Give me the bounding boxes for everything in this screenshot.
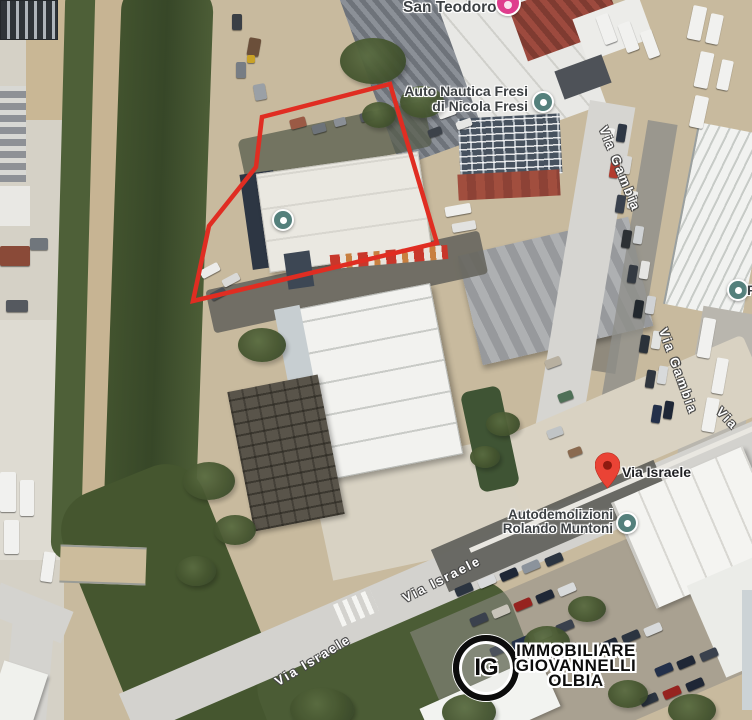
skylight-roof [457, 113, 562, 178]
agency-monogram: IG [474, 654, 497, 682]
tree [568, 596, 606, 622]
poi-label-edge-fragment: R [747, 282, 752, 298]
tree [214, 515, 256, 545]
vehicle [640, 29, 661, 59]
vehicle [236, 62, 246, 78]
tree [340, 38, 406, 84]
vehicle [716, 59, 734, 91]
vehicle [4, 520, 19, 554]
poi-label-line: di Nicola Fresi [398, 99, 528, 114]
tree [176, 556, 216, 586]
poi-label-line: Auto Nautica Fresi [398, 84, 528, 99]
vehicle [444, 203, 471, 217]
vehicle [6, 300, 28, 312]
brick-facade [457, 169, 560, 200]
poi-marker-icon[interactable] [616, 512, 638, 534]
vehicle [247, 37, 262, 57]
poi-label-san-teodoro[interactable]: San Teodoro [403, 0, 497, 17]
poi-marker-icon[interactable] [532, 91, 554, 113]
building-roof [0, 86, 26, 182]
red-map-pin-icon[interactable] [595, 452, 620, 489]
agency-name: IMMOBILIARE GIOVANNELLI OLBIA [510, 643, 642, 688]
vehicle [253, 83, 268, 101]
vehicle [693, 51, 714, 89]
vehicle [20, 480, 34, 516]
satellite-imagery [0, 0, 752, 720]
agency-watermark: IG IMMOBILIARE GIOVANNELLI OLBIA [450, 632, 690, 712]
poi-label-auto-nautica[interactable]: Auto Nautica Fresi di Nicola Fresi [398, 84, 528, 114]
tree [183, 462, 235, 500]
building-edge [742, 590, 752, 710]
vehicle [687, 5, 708, 41]
poi-label-autodemolizioni[interactable]: Autodemolizioni Rolando Muntoni [495, 508, 613, 536]
vehicle [0, 246, 30, 266]
bridge [59, 545, 146, 586]
poi-marker-icon[interactable] [272, 209, 294, 231]
building-annex [284, 250, 315, 289]
poi-label-line: Autodemolizioni [495, 508, 613, 522]
poi-label-line: Rolando Muntoni [495, 522, 613, 536]
tree [486, 412, 520, 436]
vehicle [232, 14, 242, 30]
building-roof [0, 0, 58, 40]
poi-marker-icon[interactable] [727, 279, 749, 301]
satellite-map[interactable]: San Teodoro Auto Nautica Fresi di Nicola… [0, 0, 752, 720]
tree [470, 446, 500, 468]
poi-label-via-israele[interactable]: Via Israele [622, 464, 691, 480]
pin-glyph-icon [504, 1, 512, 9]
tree [362, 102, 396, 128]
vehicle [645, 295, 657, 314]
vehicle [639, 334, 651, 353]
vehicle [0, 472, 16, 512]
tree [238, 328, 286, 362]
building-roof [0, 186, 30, 226]
agency-name-line: OLBIA [510, 673, 642, 688]
vehicle [247, 55, 255, 63]
vehicle [30, 238, 48, 250]
vehicle [705, 13, 724, 45]
